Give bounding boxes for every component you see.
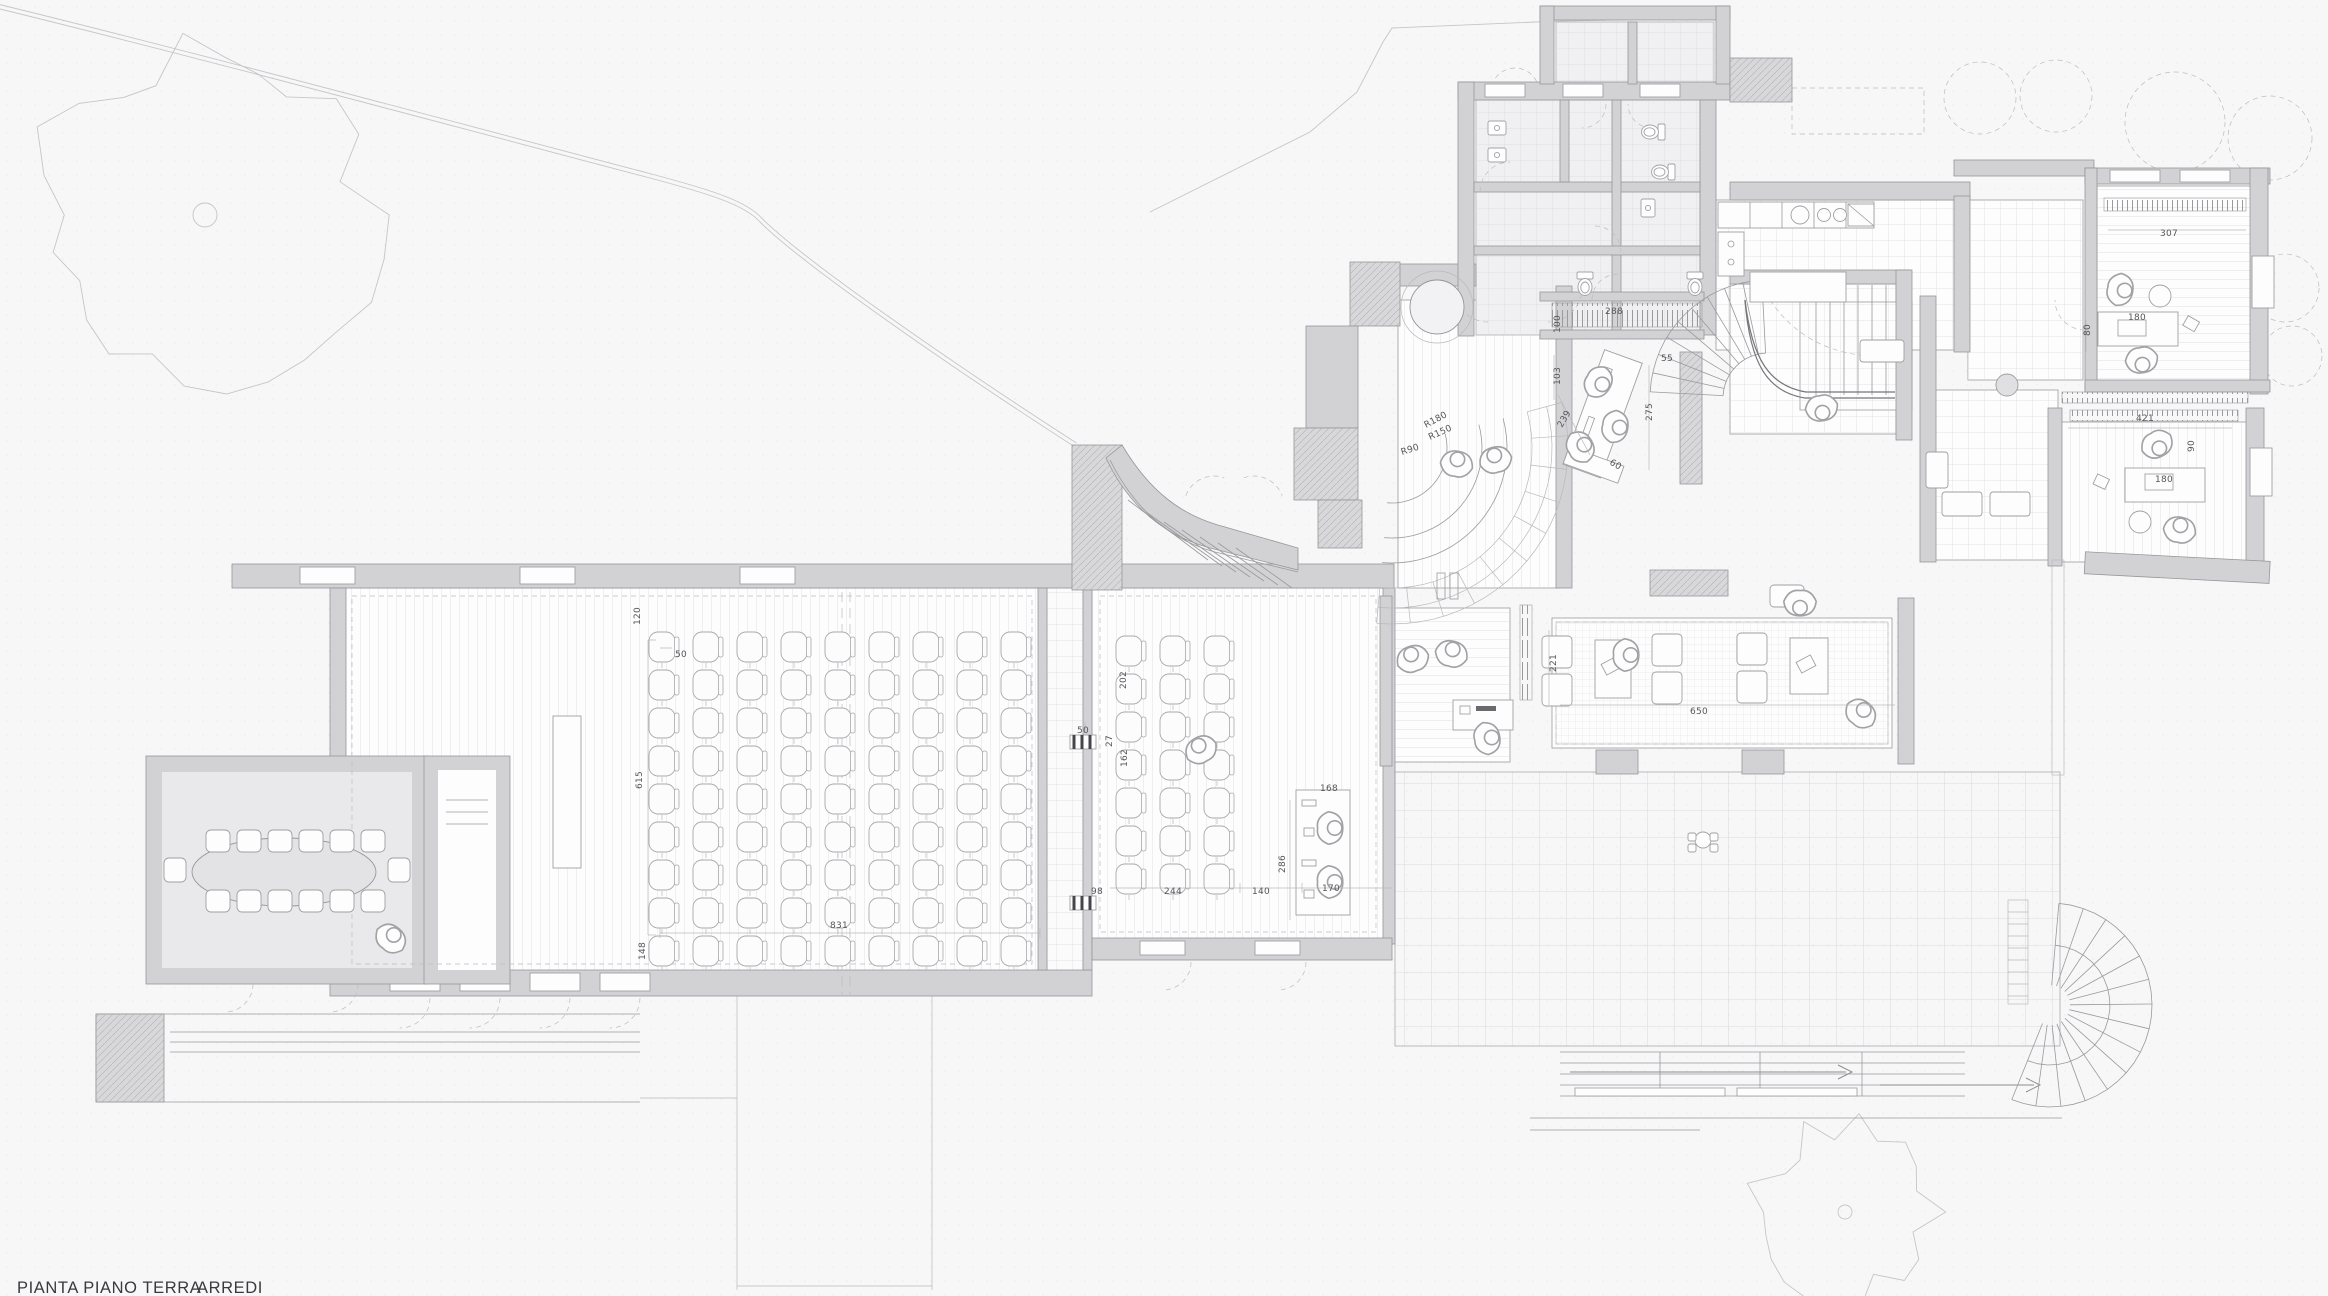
dimension-label: 288: [1605, 307, 1623, 317]
entrance-hall-planks: [1398, 300, 1560, 588]
floor-plan-drawing: 307 80 180 421 90 180 288 100 55 103 239…: [0, 0, 2328, 1296]
dimension-label: 50: [675, 650, 687, 660]
dimension-label: 98: [1091, 887, 1103, 897]
dimension-label: 148: [638, 942, 648, 960]
wing-lobby-tiles: [1930, 390, 2058, 560]
dimension-label: 615: [635, 771, 645, 789]
dimension-label: 168: [1320, 784, 1338, 794]
dimension-label: 180: [2155, 475, 2173, 485]
office-south-desk: [2125, 468, 2205, 502]
dimension-label: 650: [1690, 707, 1708, 717]
dimension-label: 221: [1549, 654, 1559, 672]
floor-plan-page: { "drawing": { "title": "PIANTA PIANO TE…: [0, 0, 2328, 1296]
dimension-label: 831: [830, 921, 848, 931]
terrace-paving: [1395, 772, 2060, 1046]
dimension-label: 90: [2187, 440, 2197, 452]
dimension-label: 170: [1322, 884, 1340, 894]
dimension-label: 100: [1553, 315, 1563, 333]
dimension-label: 55: [1661, 354, 1673, 364]
dimension-label: 120: [633, 607, 643, 625]
dimension-label: 244: [1164, 887, 1182, 897]
link-room-tiles: [1968, 200, 2083, 380]
drawing-title: PIANTA PIANO TERRA: [17, 1279, 201, 1296]
dimension-label: 80: [2083, 324, 2093, 336]
dimension-label: 180: [2128, 313, 2146, 323]
dimension-label: 103: [1553, 367, 1563, 385]
drawing-subtitle: ARREDI: [197, 1279, 263, 1296]
dimension-label: 27: [1105, 735, 1115, 747]
dimension-label: 50: [1077, 726, 1089, 736]
dimension-label: 140: [1252, 887, 1270, 897]
dimension-label: 307: [2160, 229, 2178, 239]
dimension-label: 421: [2136, 414, 2154, 424]
dimension-label: 286: [1278, 855, 1288, 873]
dimension-label: 162: [1120, 749, 1130, 767]
dimension-label: 202: [1119, 671, 1129, 689]
speaker-table: [553, 716, 581, 868]
hall-seating: [1112, 634, 1244, 900]
round-column: [1410, 280, 1464, 334]
dimension-label: 275: [1645, 403, 1655, 421]
title-block: PIANTA PIANO TERRA ARREDI: [17, 1279, 263, 1296]
corridor-tiles: [1047, 588, 1083, 972]
